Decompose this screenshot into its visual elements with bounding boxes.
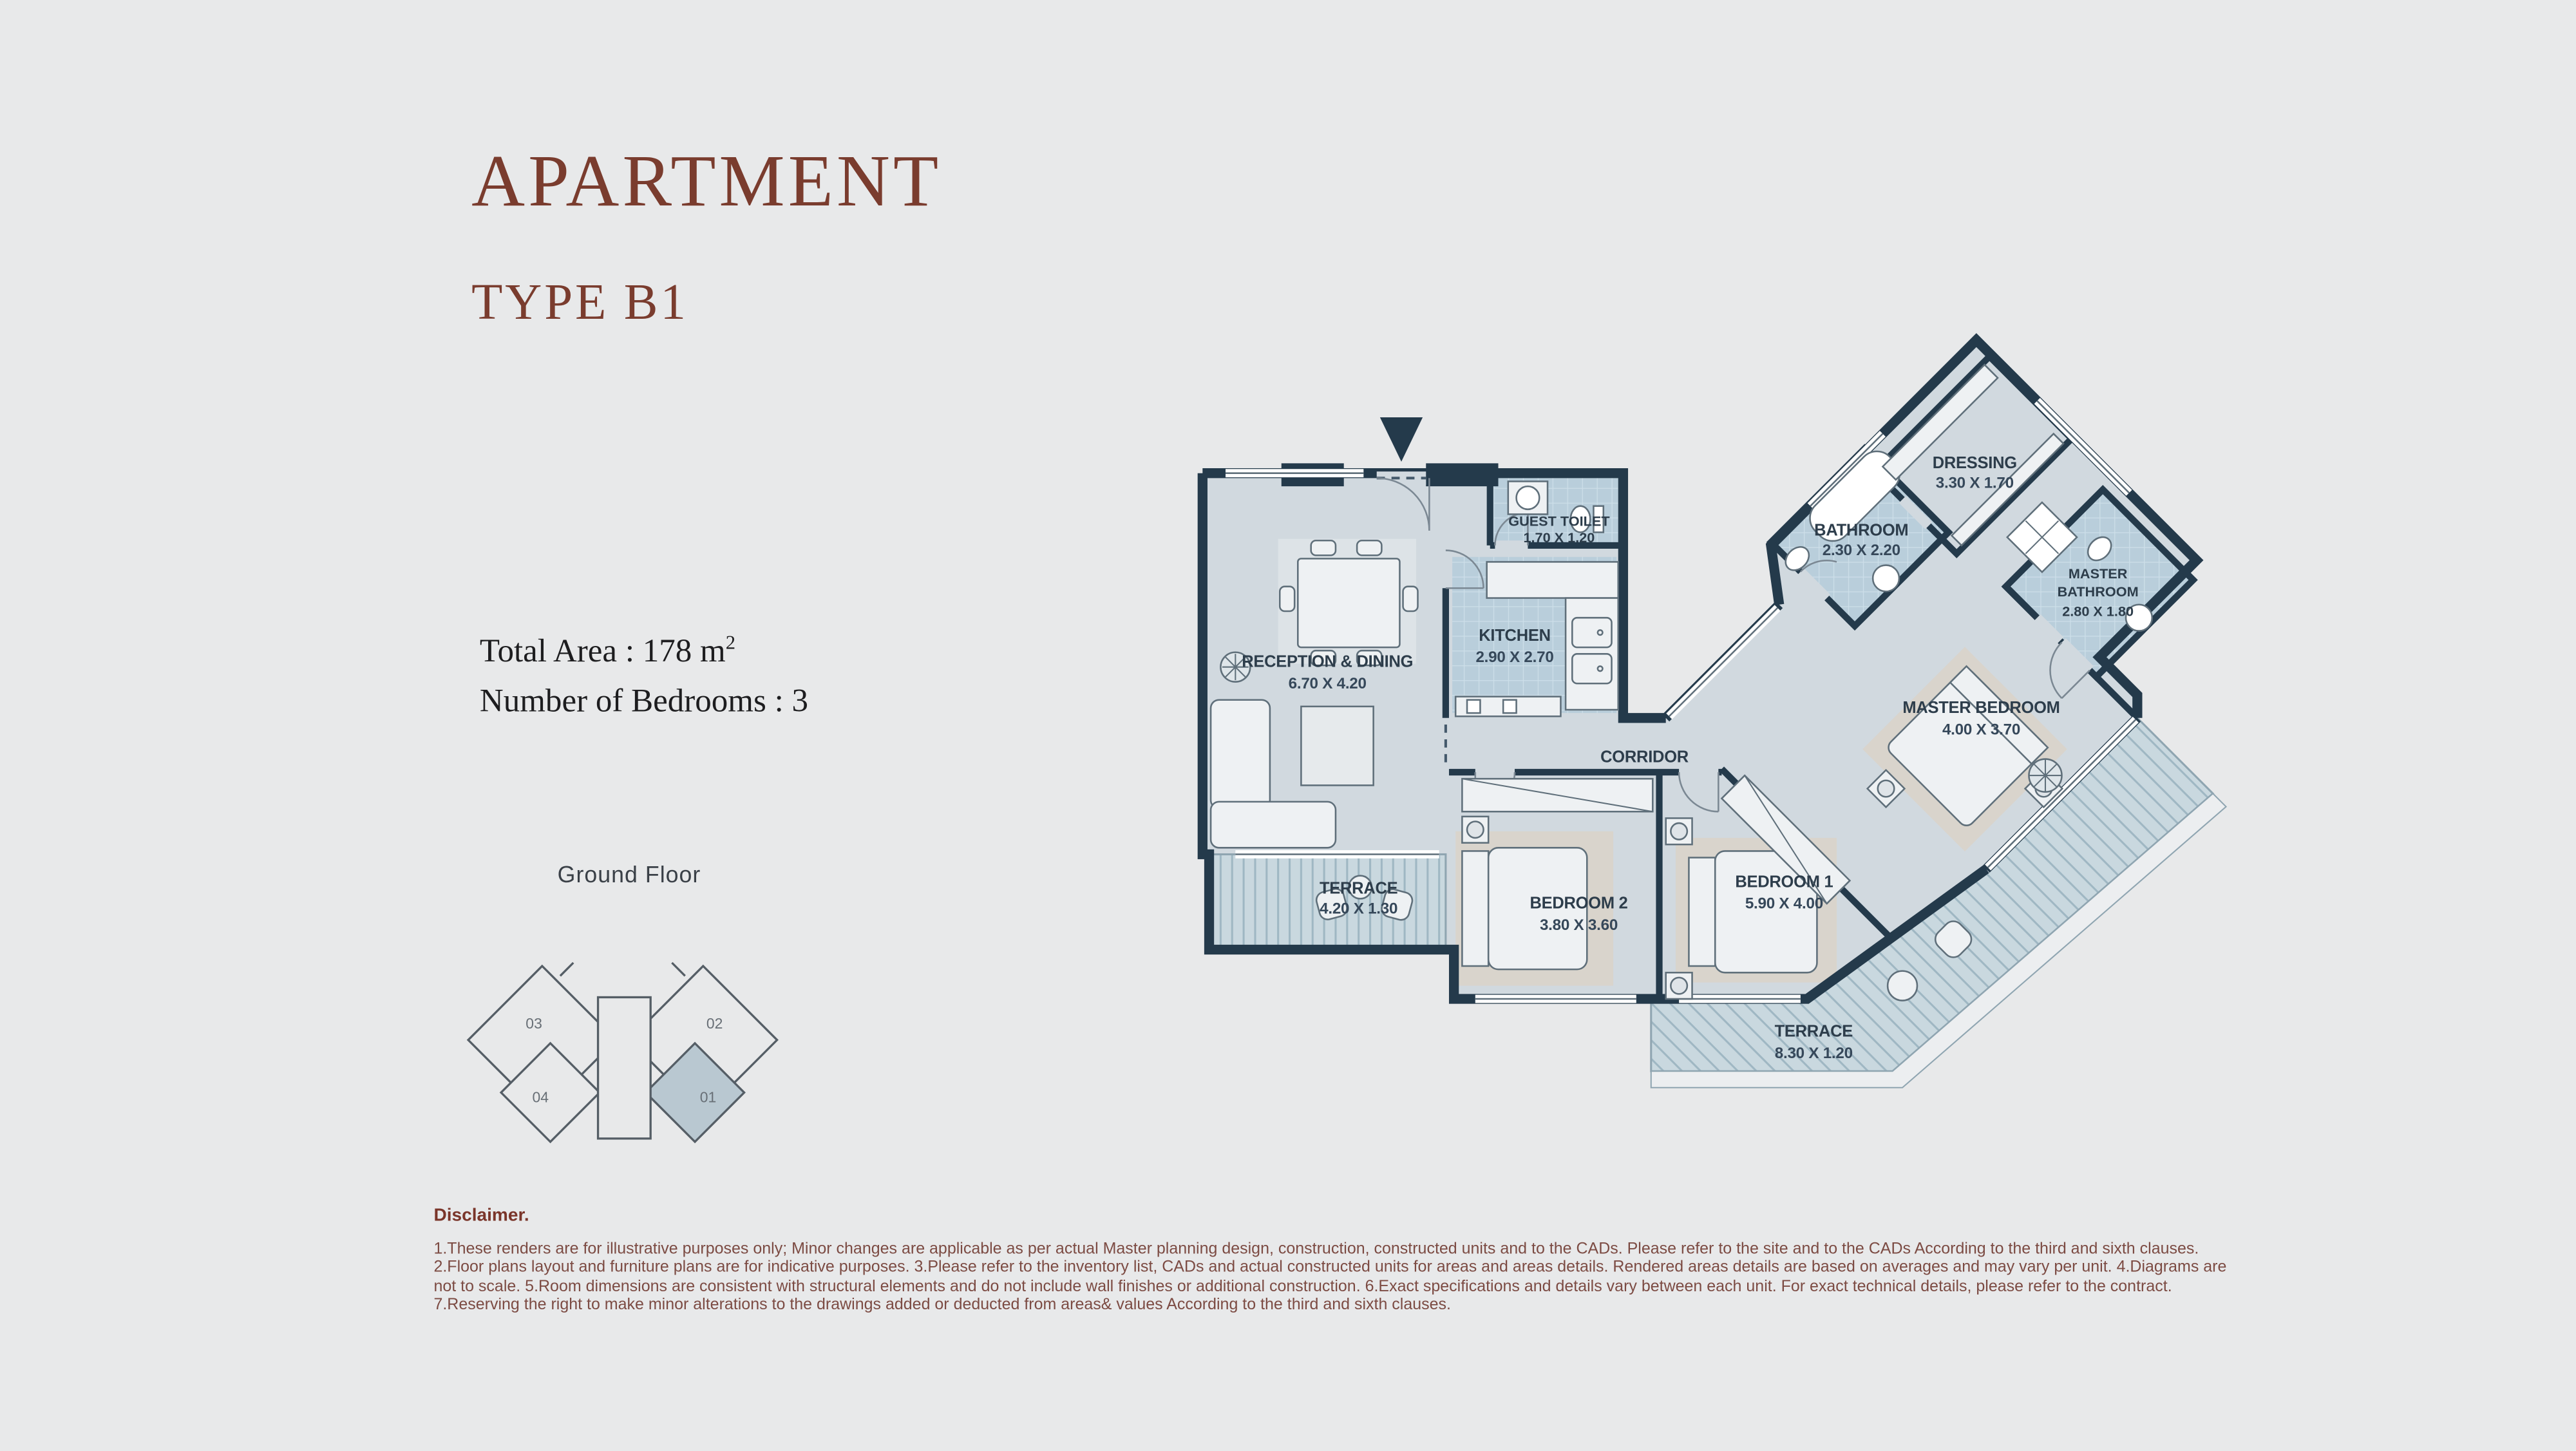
label-bedroom1: BEDROOM 1 [1735,873,1833,891]
label-kitchen-dims: 2.90 X 2.70 [1475,649,1553,666]
label-bedroom2-dims: 3.80 X 3.60 [1540,916,1618,934]
label-guest-toilet: GUEST TOILET [1508,513,1609,529]
building-key-plan: 03 02 04 01 [465,946,793,1150]
key-plan-unit-04-label: 04 [533,1089,549,1106]
label-master-bathroom-2: BATHROOM [2058,583,2139,600]
disclaimer-line: not to scale. 5.Room dimensions are cons… [433,1278,2226,1296]
label-bedroom1-dims: 5.90 X 4.00 [1745,895,1823,913]
label-master-bathroom-1: MASTER [2069,565,2128,582]
label-bathroom-dims: 2.30 X 2.20 [1823,542,1900,559]
label-terrace-side: TERRACE [1775,1023,1853,1041]
key-plan-unit-01-label: 01 [700,1089,717,1106]
kitchen-counter-top [1487,562,1618,598]
label-corridor: CORRIDOR [1600,748,1689,766]
label-reception-dims: 6.70 X 4.20 [1289,675,1367,692]
label-terrace-front-dims: 4.20 X 1.30 [1320,900,1397,917]
disclaimer-line: 2.Floor plans layout and furniture plans… [433,1259,2226,1278]
label-dressing: DRESSING [1933,454,2017,472]
coffee-table [1301,707,1373,785]
bedroom2-bed-pillows [1462,851,1488,966]
label-dressing-dims: 3.30 X 1.70 [1936,475,2014,492]
floor-name-label: Ground Floor [465,861,793,887]
disclaimer-line: 1.These renders are for illustrative pur… [433,1240,2226,1259]
label-kitchen: KITCHEN [1479,627,1551,645]
key-plan-core-shape [598,997,651,1138]
disclaimer-section: Disclaimer. 1.These renders are for illu… [433,1206,2226,1315]
guest-toilet-sink [1517,486,1540,509]
label-bedroom2: BEDROOM 2 [1529,895,1627,913]
bathroom-sink [1873,565,1899,592]
label-master-bedroom-dims: 4.00 X 3.70 [1942,721,2020,738]
disclaimer-heading: Disclaimer. [433,1206,2226,1226]
unit-type-subtitle: TYPE B1 [471,276,688,327]
brochure-page: APARTMENT TYPE B1 Total Area : 178 m2 Nu… [0,0,2576,1451]
key-plan-unit-02-label: 02 [706,1015,723,1032]
label-guest-toilet-dims: 1.70 X 1.20 [1523,529,1595,545]
unit-summary: Total Area : 178 m2 Number of Bedrooms :… [480,618,808,725]
total-area-line: Total Area : 178 m2 [480,618,808,676]
bedroom1-bed-pillows [1689,858,1715,966]
area-exponent: 2 [726,631,735,654]
label-bathroom: BATHROOM [1814,522,1908,540]
bedrooms-line: Number of Bedrooms : 3 [480,676,808,726]
page-title: APARTMENT [471,144,942,218]
label-master-bathroom-dims: 2.80 X 1.80 [2062,603,2134,620]
label-reception: RECEPTION & DINING [1242,653,1413,671]
floor-plan: RECEPTION & DINING 6.70 X 4.20 KITCHEN 2… [1150,320,2284,1125]
sofa [1211,700,1270,808]
key-plan-unit-03-label: 03 [526,1015,542,1032]
label-terrace-front: TERRACE [1320,880,1398,898]
dining-table [1298,558,1399,647]
label-terrace-side-dims: 8.30 X 1.20 [1775,1045,1853,1062]
disclaimer-line: 7.Reserving the right to make minor alte… [433,1296,2226,1315]
entry-arrow-icon [1380,417,1423,462]
label-master-bedroom: MASTER BEDROOM [1902,699,2060,717]
